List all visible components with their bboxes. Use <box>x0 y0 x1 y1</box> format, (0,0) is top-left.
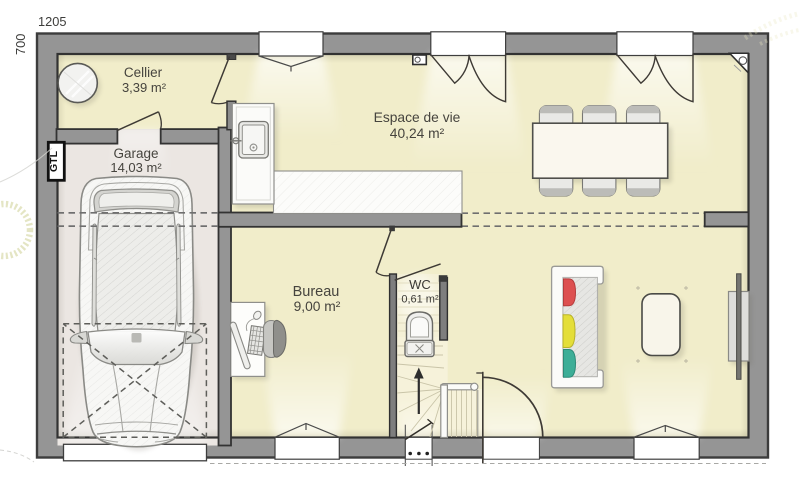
svg-text:3,39 m²: 3,39 m² <box>122 80 167 95</box>
svg-text:GTL: GTL <box>48 150 60 172</box>
svg-text:Espace de vie: Espace de vie <box>374 110 461 125</box>
svg-text:0,61 m²: 0,61 m² <box>401 294 439 306</box>
svg-text:700: 700 <box>13 34 28 55</box>
svg-text:40,24 m²: 40,24 m² <box>390 126 445 141</box>
svg-text:Garage: Garage <box>113 146 158 161</box>
svg-text:1205: 1205 <box>38 14 66 29</box>
svg-text:14,03 m²: 14,03 m² <box>110 160 162 175</box>
svg-text:Cellier: Cellier <box>124 65 163 80</box>
svg-text:Bureau: Bureau <box>293 284 340 300</box>
svg-text:9,00 m²: 9,00 m² <box>294 299 341 314</box>
svg-text:WC: WC <box>409 277 431 292</box>
